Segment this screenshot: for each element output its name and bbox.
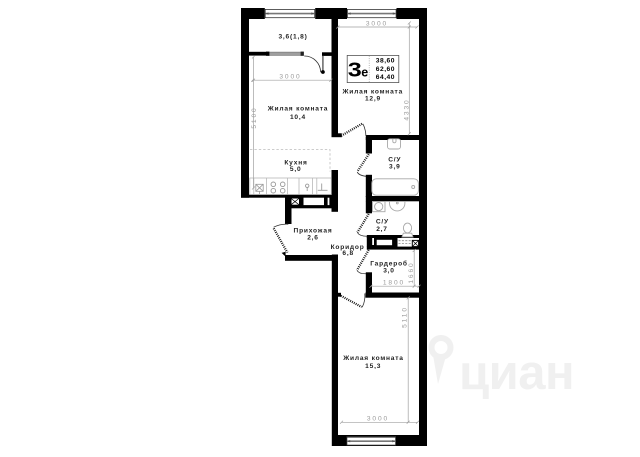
svg-text:Жилая комната: Жилая комната xyxy=(267,106,329,113)
svg-text:Жилая комната: Жилая комната xyxy=(342,355,404,362)
svg-text:4330: 4330 xyxy=(404,98,411,120)
svg-text:10,4: 10,4 xyxy=(290,114,306,121)
svg-text:64,40: 64,40 xyxy=(376,74,395,81)
svg-text:3000: 3000 xyxy=(366,20,388,27)
svg-text:1660: 1660 xyxy=(408,261,415,283)
svg-text:1800: 1800 xyxy=(383,279,405,286)
svg-text:5110: 5110 xyxy=(402,306,409,328)
svg-text:2,7: 2,7 xyxy=(376,226,388,233)
svg-text:3,0: 3,0 xyxy=(383,268,395,275)
svg-text:3000: 3000 xyxy=(367,416,389,423)
svg-text:С/У: С/У xyxy=(388,157,401,164)
svg-text:12,9: 12,9 xyxy=(365,95,381,102)
svg-text:5100: 5100 xyxy=(251,106,258,128)
svg-text:С/У: С/У xyxy=(376,218,389,225)
svg-text:циан: циан xyxy=(459,346,574,400)
svg-text:3,9: 3,9 xyxy=(389,164,401,171)
svg-text:3,6(1,8): 3,6(1,8) xyxy=(278,34,307,41)
svg-text:15,3: 15,3 xyxy=(365,363,381,370)
svg-text:Гардероб: Гардероб xyxy=(370,259,408,267)
svg-text:5,0: 5,0 xyxy=(290,166,302,173)
svg-text:е: е xyxy=(361,65,368,79)
svg-text:3000: 3000 xyxy=(279,74,301,81)
svg-text:3: 3 xyxy=(348,58,362,81)
svg-text:38,60: 38,60 xyxy=(376,58,395,65)
svg-text:2,6: 2,6 xyxy=(307,234,319,241)
svg-text:6,8: 6,8 xyxy=(342,250,354,257)
svg-text:62,60: 62,60 xyxy=(376,66,395,73)
